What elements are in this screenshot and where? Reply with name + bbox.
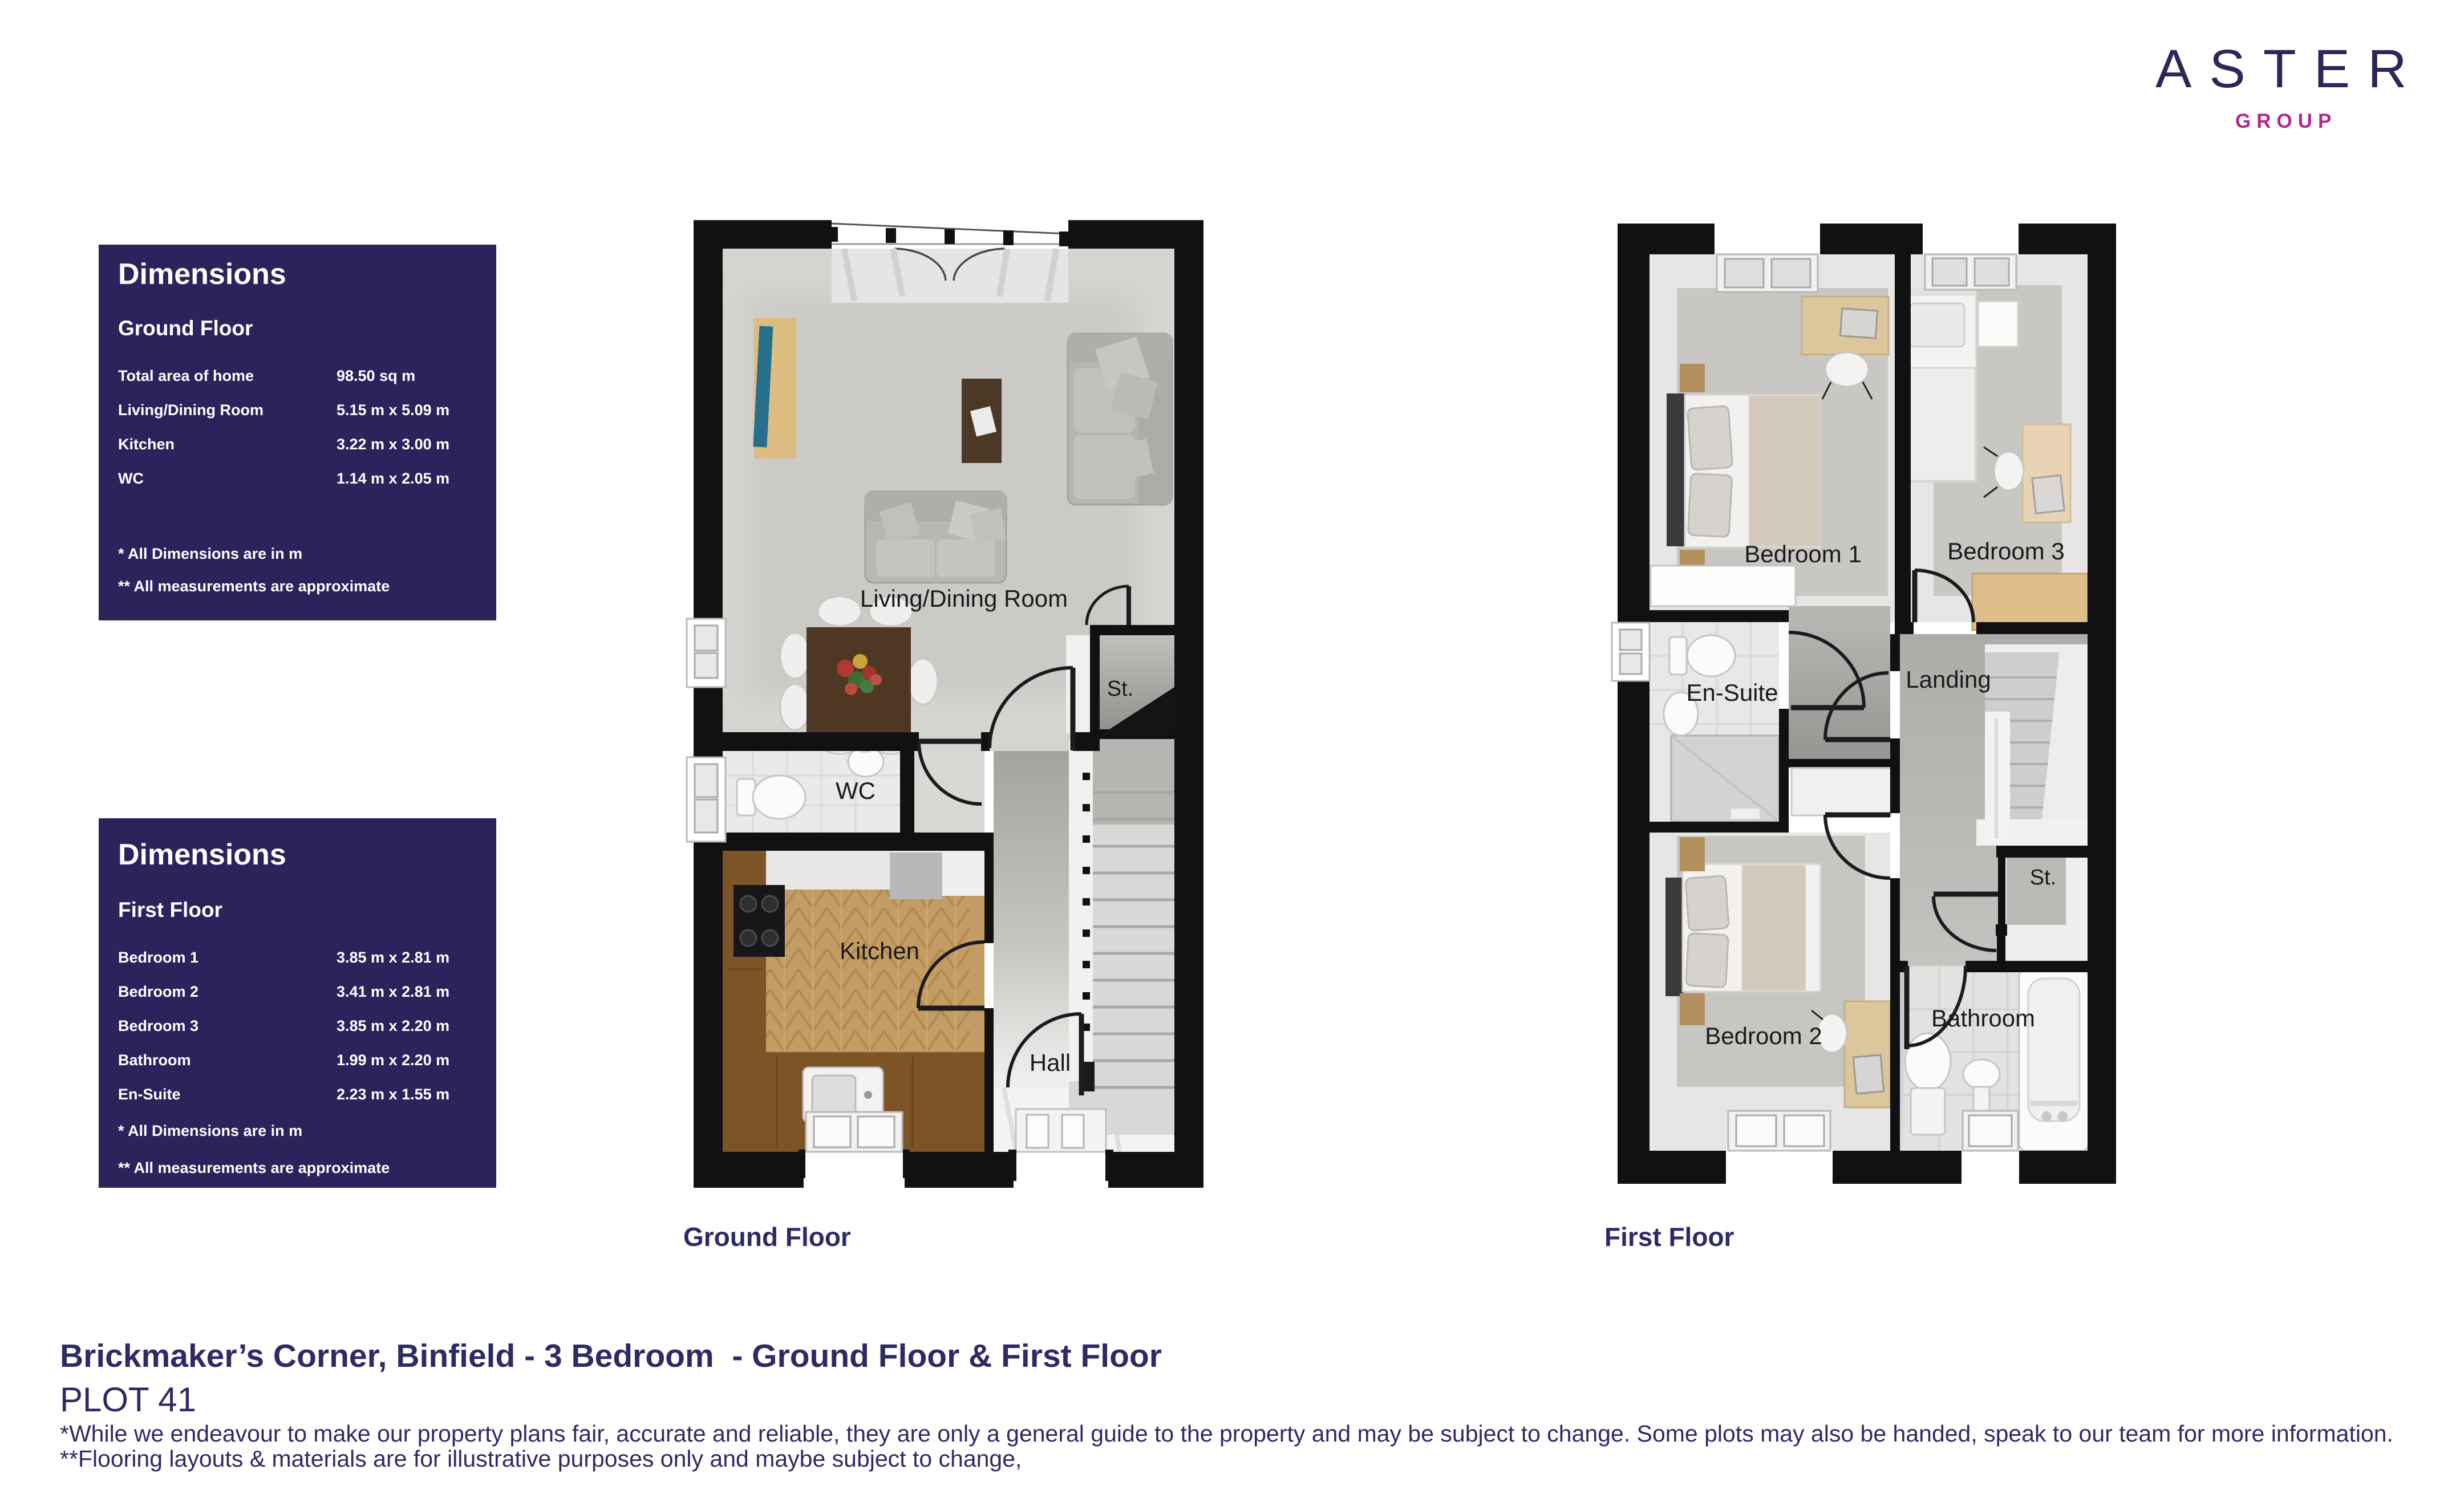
svg-text:St.: St. bbox=[2030, 866, 2056, 890]
svg-text:WC: WC bbox=[836, 777, 876, 804]
svg-text:Kitchen: Kitchen bbox=[840, 937, 919, 964]
svg-text:Bedroom 2: Bedroom 2 bbox=[1705, 1022, 1822, 1049]
svg-text:Living/Dining Room: Living/Dining Room bbox=[860, 585, 1068, 612]
svg-text:Hall: Hall bbox=[1030, 1049, 1071, 1076]
svg-text:St.: St. bbox=[1107, 677, 1133, 701]
svg-text:Landing: Landing bbox=[1906, 666, 1991, 693]
svg-text:Bedroom 1: Bedroom 1 bbox=[1744, 541, 1861, 567]
svg-text:Bathroom: Bathroom bbox=[1931, 1005, 2035, 1032]
svg-text:En-Suite: En-Suite bbox=[1686, 679, 1778, 706]
svg-text:Bedroom 3: Bedroom 3 bbox=[1947, 538, 2064, 565]
